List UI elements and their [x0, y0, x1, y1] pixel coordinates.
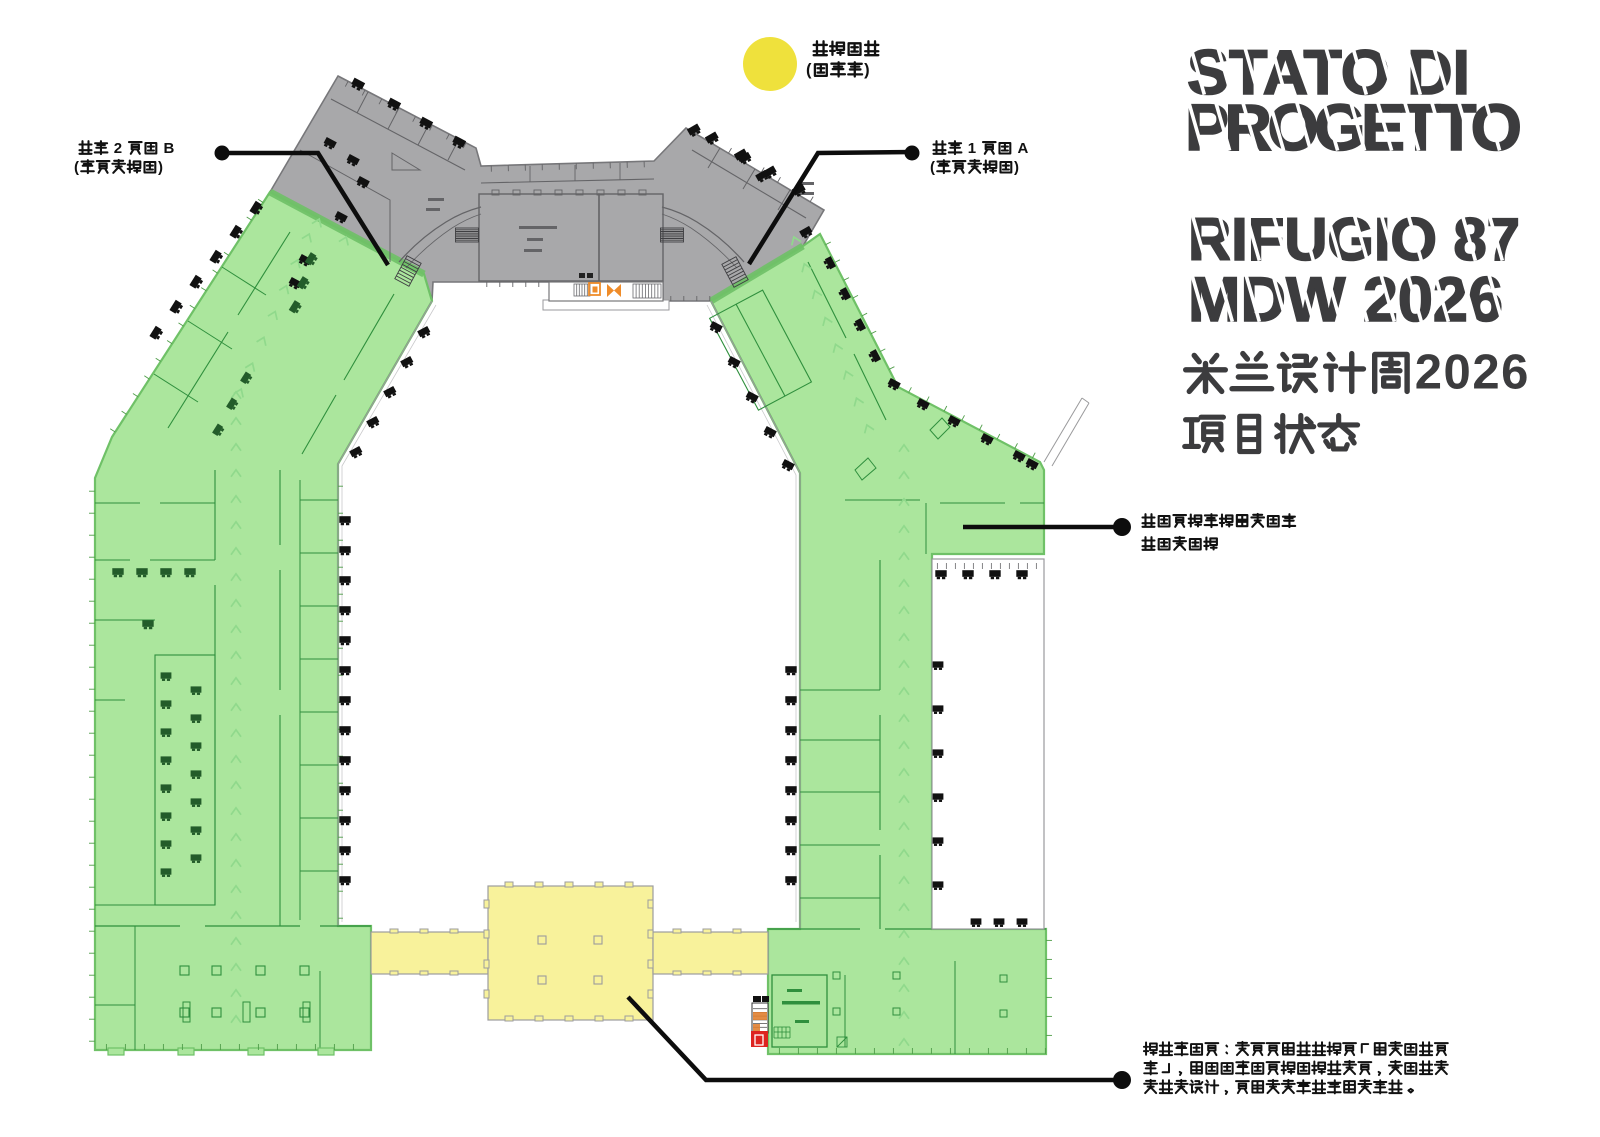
svg-text:2026: 2026: [1415, 346, 1529, 400]
svg-text:MDW 2026: MDW 2026: [1188, 265, 1503, 335]
svg-text:(: (: [806, 61, 812, 79]
svg-text:B: B: [164, 140, 175, 157]
svg-text:2: 2: [114, 140, 122, 157]
svg-text:(: (: [930, 159, 935, 176]
svg-text:1: 1: [968, 140, 976, 157]
svg-text:): ): [1014, 159, 1019, 176]
svg-text:A: A: [1018, 140, 1029, 157]
svg-text:(: (: [74, 159, 79, 176]
svg-text:): ): [158, 159, 163, 176]
svg-text:PROGETTO: PROGETTO: [1185, 90, 1522, 164]
svg-text:): ): [864, 61, 870, 79]
